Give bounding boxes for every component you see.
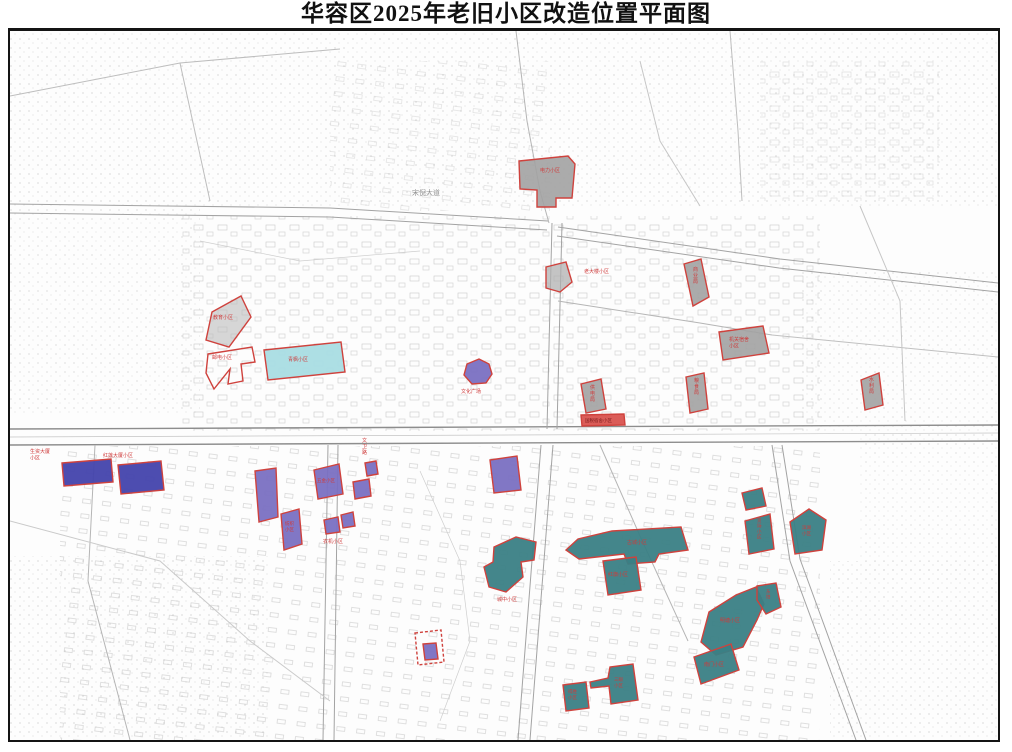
plan-map-page: 华容区2025年老旧小区改造位置平面图 xyxy=(0,0,1012,752)
area-label: 教育小区 xyxy=(213,314,233,321)
basemap-texture xyxy=(10,31,998,740)
renovation-area xyxy=(62,459,113,486)
renovation-area xyxy=(118,461,164,494)
area-label: 五金小区 xyxy=(317,477,335,484)
area-label: 水利局 xyxy=(869,376,874,395)
area-label: 文卫路 xyxy=(362,437,367,456)
renovation-area xyxy=(255,468,278,522)
renovation-area xyxy=(423,643,438,660)
area-label: 红莲大厦小区 xyxy=(103,452,133,459)
area-label: 东塔 xyxy=(766,588,771,601)
area-label: 纺织小区 xyxy=(285,520,294,533)
map-canvas: 电力小区老大楼小区商业局机关宿舍小区粮食局水利局教育小区邮电小区青枫小区文化广场… xyxy=(10,31,998,740)
renovation-area xyxy=(490,456,521,493)
area-label: 城中小区 xyxy=(497,596,517,603)
area-label: 三眼小区 xyxy=(614,677,623,689)
area-label: 国税宿舍小区 xyxy=(585,417,612,424)
area-label: 宋倪大道 xyxy=(412,188,440,197)
area-label: 青枫小区 xyxy=(288,356,308,363)
area-label: 滨湖小区 xyxy=(802,524,811,537)
renovation-area xyxy=(324,517,340,534)
renovation-area xyxy=(365,461,378,476)
area-label: 古城小区 xyxy=(627,539,647,546)
map-frame: 电力小区老大楼小区商业局机关宿舍小区粮食局水利局教育小区邮电小区青枫小区文化广场… xyxy=(8,28,1000,742)
renovation-area xyxy=(341,512,355,528)
area-label: 电力小区 xyxy=(540,167,560,174)
area-label: 农机小区 xyxy=(323,538,343,545)
area-label: 得胜小区 xyxy=(568,688,577,701)
area-label: 供电局 xyxy=(590,384,595,403)
renovation-area xyxy=(353,479,371,499)
area-label: 文化广场 xyxy=(461,388,481,395)
area-label: 南门小区 xyxy=(704,661,724,668)
page-title: 华容区2025年老旧小区改造位置平面图 xyxy=(0,0,1012,28)
area-label: 明塘小区 xyxy=(720,617,740,624)
area-label: 粮食局 xyxy=(694,377,699,396)
area-label: 商业局 xyxy=(693,266,698,285)
area-label: 邮电小区 xyxy=(212,354,232,361)
area-label: 红旗小区 xyxy=(608,571,628,578)
area-label: 货场小区 xyxy=(757,517,762,540)
area-label: 生资大厦小区 xyxy=(30,448,50,462)
area-label: 老大楼小区 xyxy=(584,268,609,275)
renovation-area xyxy=(464,359,492,384)
